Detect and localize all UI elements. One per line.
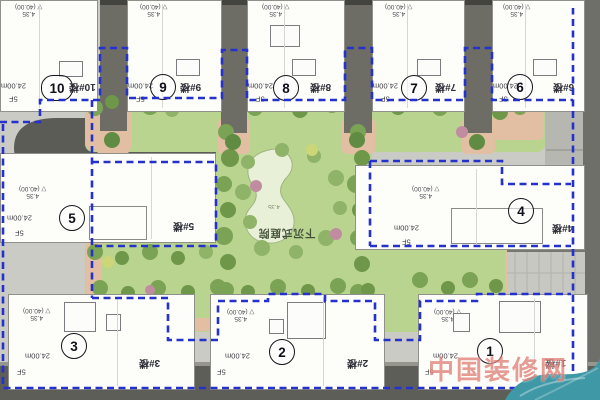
shaft-box bbox=[176, 59, 200, 76]
elevation-datum: (40.00) bbox=[19, 184, 40, 191]
elevation-datum: (40.00) bbox=[412, 184, 433, 191]
building-label: 7#楼 bbox=[435, 81, 456, 91]
elevation-marker: 4.35 ▽ (40.00) bbox=[140, 2, 167, 17]
site-plan: 4.35 ▽ (40.00) 10 10#楼 24.00m 5F 4.35 ▽ … bbox=[0, 0, 600, 400]
elevation-value: 4.35 bbox=[26, 192, 39, 199]
elevation-value: 4.35 bbox=[30, 314, 43, 321]
floors-label: 5F bbox=[15, 229, 24, 237]
building-10: 4.35 ▽ (40.00) 10 10#楼 24.00m 5F bbox=[0, 0, 98, 112]
building-2-number-badge: 2 bbox=[269, 339, 295, 365]
shaft-box bbox=[417, 59, 441, 76]
floors-label: 5F bbox=[381, 95, 390, 103]
badge-number: 8 bbox=[282, 81, 290, 96]
building-label: 6#楼 bbox=[553, 81, 574, 91]
footprint-outline bbox=[89, 206, 147, 240]
height-label: 24.00m bbox=[25, 352, 50, 360]
building-8: 4.35 ▽ (40.00) 8 8#楼 24.00m 5F bbox=[247, 0, 345, 112]
watermark: 中国装修网 bbox=[428, 350, 568, 387]
building-label: 9#楼 bbox=[180, 81, 201, 91]
height-label: 24.00m bbox=[373, 82, 398, 90]
building-3: 4.35 ▽ (40.00) 3 3#楼 24.00m 5F bbox=[8, 294, 195, 390]
height-label: 24.00m bbox=[7, 214, 32, 222]
elevation-datum: (40.00) bbox=[262, 2, 283, 9]
floors-label: 5F bbox=[9, 95, 18, 103]
elevation-datum: (40.00) bbox=[503, 2, 524, 9]
height-label: 24.00m bbox=[248, 82, 273, 90]
building-9: 4.35 ▽ (40.00) 9 9#楼 24.00m 5F bbox=[127, 0, 222, 112]
elevation-marker: 4.35 ▽ (40.00) bbox=[503, 2, 530, 17]
floors-label: 5F bbox=[499, 95, 508, 103]
grid-line bbox=[117, 298, 118, 386]
elevation-value: 4.35 bbox=[147, 10, 160, 17]
badge-number: 7 bbox=[410, 81, 418, 96]
badge-number: 4 bbox=[517, 204, 525, 219]
elevation-marker: 4.35 ▽ (40.00) bbox=[19, 184, 46, 199]
elevation-datum: (40.00) bbox=[385, 2, 406, 9]
building-label: 2#楼 bbox=[347, 357, 368, 367]
elevation-value: 4.35 bbox=[510, 10, 523, 17]
height-label: 24.00m bbox=[225, 352, 250, 360]
shaft-box bbox=[533, 59, 557, 76]
elevation-marker: 4.35 ▽ (40.00) bbox=[227, 307, 254, 322]
elevation-value: 4.35 bbox=[234, 315, 247, 322]
floors-label: 5F bbox=[17, 368, 26, 376]
shaft-box bbox=[287, 302, 326, 339]
elevation-marker: 4.35 ▽ (40.00) bbox=[385, 2, 412, 17]
building-5-number-badge: 5 bbox=[59, 205, 85, 231]
height-label: 24.00m bbox=[128, 82, 153, 90]
shaft-box bbox=[269, 319, 284, 334]
badge-number: 2 bbox=[278, 345, 286, 360]
elevation-marker: 4.35 ▽ (40.00) bbox=[262, 2, 289, 17]
elevation-value: 4.35 bbox=[392, 10, 405, 17]
building-label: 8#楼 bbox=[310, 81, 331, 91]
badge-number: 3 bbox=[70, 339, 78, 354]
building-4-number-badge: 4 bbox=[508, 198, 534, 224]
badge-number: 9 bbox=[159, 80, 167, 95]
elevation-value: 4.35 bbox=[419, 192, 432, 199]
building-2: 4.35 ▽ (40.00) 2 2#楼 24.00m 5F bbox=[210, 294, 385, 390]
building-label: 3#楼 bbox=[139, 357, 160, 367]
elevation-value: 4.35 bbox=[269, 10, 282, 17]
shaft-box bbox=[64, 302, 96, 332]
elevation-datum: (40.00) bbox=[434, 307, 455, 314]
height-label: 24.00m bbox=[394, 224, 419, 232]
elevation-datum: (40.00) bbox=[227, 307, 248, 314]
building-7: 4.35 ▽ (40.00) 7 7#楼 24.00m 5F bbox=[372, 0, 465, 112]
floors-label: 5F bbox=[256, 95, 265, 103]
height-label: 24.00m bbox=[1, 82, 26, 90]
shaft-box bbox=[453, 313, 470, 332]
building-6: 4.35 ▽ (40.00) 6 6#楼 24.00m 5F bbox=[492, 0, 585, 112]
grid-line bbox=[476, 169, 477, 246]
building-label: 4#楼 bbox=[552, 222, 573, 232]
floors-label: 5F bbox=[402, 238, 411, 246]
building-label: 5#楼 bbox=[173, 220, 194, 230]
building-9-number-badge: 9 bbox=[150, 74, 176, 100]
floors-label: 5F bbox=[217, 368, 226, 376]
shaft-box bbox=[106, 314, 121, 331]
building-8-number-badge: 8 bbox=[273, 75, 299, 101]
shaft-box bbox=[270, 25, 300, 47]
building-3-number-badge: 3 bbox=[61, 333, 87, 359]
elevation-marker: 4.35 ▽ (40.00) bbox=[23, 306, 50, 321]
building-4: 4.35 ▽ (40.00) 4 4#楼 24.00m 5F bbox=[355, 165, 585, 250]
building-label: 10#楼 bbox=[69, 81, 96, 91]
floors-label: 5F bbox=[136, 95, 145, 103]
grid-line bbox=[323, 298, 324, 386]
shaft-box bbox=[292, 59, 316, 76]
elevation-value: 4.35 bbox=[22, 10, 35, 17]
badge-number: 10 bbox=[49, 81, 64, 96]
elevation-datum: (40.00) bbox=[140, 2, 161, 9]
height-label: 24.00m bbox=[493, 82, 518, 90]
elevation-datum: (40.00) bbox=[15, 2, 36, 9]
grid-line bbox=[39, 4, 40, 108]
elevation-marker: 4.35 ▽ (40.00) bbox=[412, 184, 439, 199]
grid-line bbox=[151, 157, 152, 239]
building-7-number-badge: 7 bbox=[401, 75, 427, 101]
building-5: 4.35 ▽ (40.00) 5 5#楼 24.00m 5F bbox=[0, 153, 216, 243]
badge-number: 5 bbox=[68, 211, 76, 226]
elevation-datum: (40.00) bbox=[23, 306, 44, 313]
